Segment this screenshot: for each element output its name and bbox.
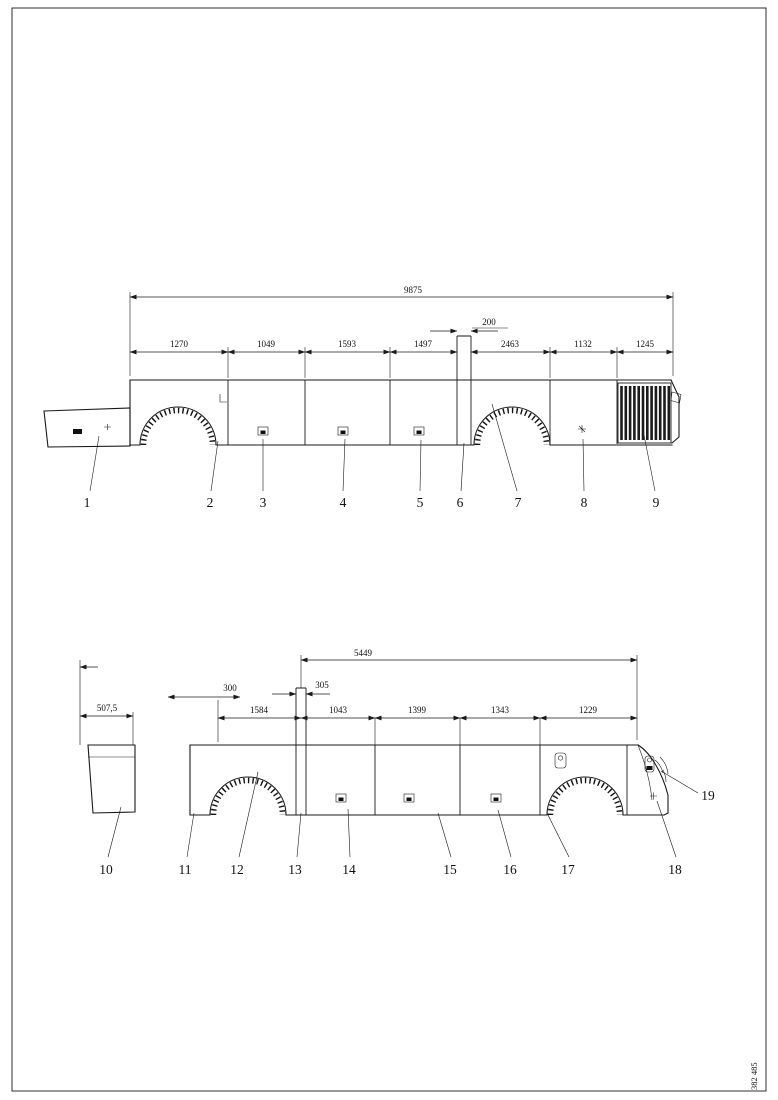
grille-bars	[622, 386, 669, 440]
front-edge	[638, 745, 668, 815]
dim-seg-7: 1245	[636, 339, 655, 349]
dim-small-200: 200	[482, 317, 496, 327]
leader-5	[420, 440, 421, 491]
dim-seg-2: 1049	[257, 339, 276, 349]
callout-10: 10	[99, 862, 113, 877]
callout-14: 14	[342, 862, 356, 877]
strip-13	[296, 688, 306, 815]
leader-8	[583, 439, 584, 491]
callout-19: 19	[701, 788, 715, 803]
callout-7: 7	[515, 495, 522, 510]
drawing-page: 9875 1270 1049 1593 1497 2463 1132 1245 …	[0, 0, 778, 1100]
filler-strip	[457, 336, 471, 445]
callout-17: 17	[561, 862, 575, 877]
panel-10-outline	[88, 745, 135, 813]
leader-10	[108, 807, 121, 857]
callout-11: 11	[179, 862, 192, 877]
a-pillar-scribble	[655, 757, 668, 782]
panel-1-latch	[73, 429, 82, 434]
bottom-view: 5449 507,5 300 305 1584 1043 1399 1343 1…	[80, 648, 715, 877]
leader-16	[498, 810, 511, 857]
leader-14	[348, 809, 350, 857]
leader-7	[492, 404, 517, 491]
panel-diagram-svg: 9875 1270 1049 1593 1497 2463 1132 1245 …	[0, 0, 778, 1100]
leader-11	[187, 813, 194, 857]
vent-16	[491, 794, 501, 802]
callout-3: 3	[260, 495, 267, 510]
callout-5: 5	[417, 495, 424, 510]
dim-small-305: 305	[315, 680, 329, 690]
dim-seg-3: 1399	[408, 705, 427, 715]
fuel-flap-detail	[555, 753, 566, 768]
panel-1-outline	[44, 408, 130, 447]
callout-18: 18	[668, 862, 682, 877]
callout-15: 15	[443, 862, 457, 877]
dim-seg-4: 1343	[491, 705, 510, 715]
dim-overall-bottom: 5449	[354, 648, 373, 658]
panel-2-bracket	[220, 394, 227, 402]
leader-4	[343, 439, 345, 491]
front-edge	[671, 380, 679, 443]
callout-9: 9	[653, 495, 660, 510]
vent-4	[338, 427, 348, 435]
drawing-number: 382 485	[749, 1062, 759, 1090]
callout-1: 1	[84, 495, 91, 510]
leader-13	[297, 813, 301, 857]
leader-2	[211, 441, 218, 491]
leader-15	[438, 813, 451, 857]
callout-8: 8	[581, 495, 588, 510]
dim-seg-1: 1584	[250, 705, 269, 715]
vent-15	[404, 794, 414, 802]
callout-13: 13	[288, 862, 302, 877]
callout-4: 4	[340, 495, 347, 510]
dim-overall-top: 9875	[404, 285, 423, 295]
panel-8-mark	[578, 425, 586, 433]
leader-1	[90, 436, 99, 491]
callout-16: 16	[503, 862, 517, 877]
callout-2: 2	[207, 495, 214, 510]
dim-seg-5: 1229	[579, 705, 598, 715]
vent-14	[336, 794, 346, 802]
dim-seg-4: 1497	[414, 339, 433, 349]
dim-seg-5: 2463	[501, 339, 520, 349]
dim-small-300: 300	[223, 683, 237, 693]
dim-seg-6: 1132	[574, 339, 592, 349]
page-frame	[12, 8, 766, 1091]
dim-seg-1: 1270	[170, 339, 189, 349]
dim-seg-3: 1593	[338, 339, 357, 349]
callout-12: 12	[230, 862, 244, 877]
leader-17	[547, 813, 569, 857]
leader-12	[239, 772, 258, 857]
leader-6	[461, 443, 464, 491]
panel-1-mark	[104, 424, 111, 430]
dim-left: 507,5	[97, 703, 118, 713]
front-inner-curve	[638, 745, 652, 800]
vent-3	[258, 427, 268, 435]
leader-18	[657, 801, 676, 857]
top-view: 9875 1270 1049 1593 1497 2463 1132 1245 …	[44, 285, 681, 510]
callout-6: 6	[457, 495, 464, 510]
vent-5	[414, 427, 424, 435]
dim-seg-2: 1043	[329, 705, 348, 715]
